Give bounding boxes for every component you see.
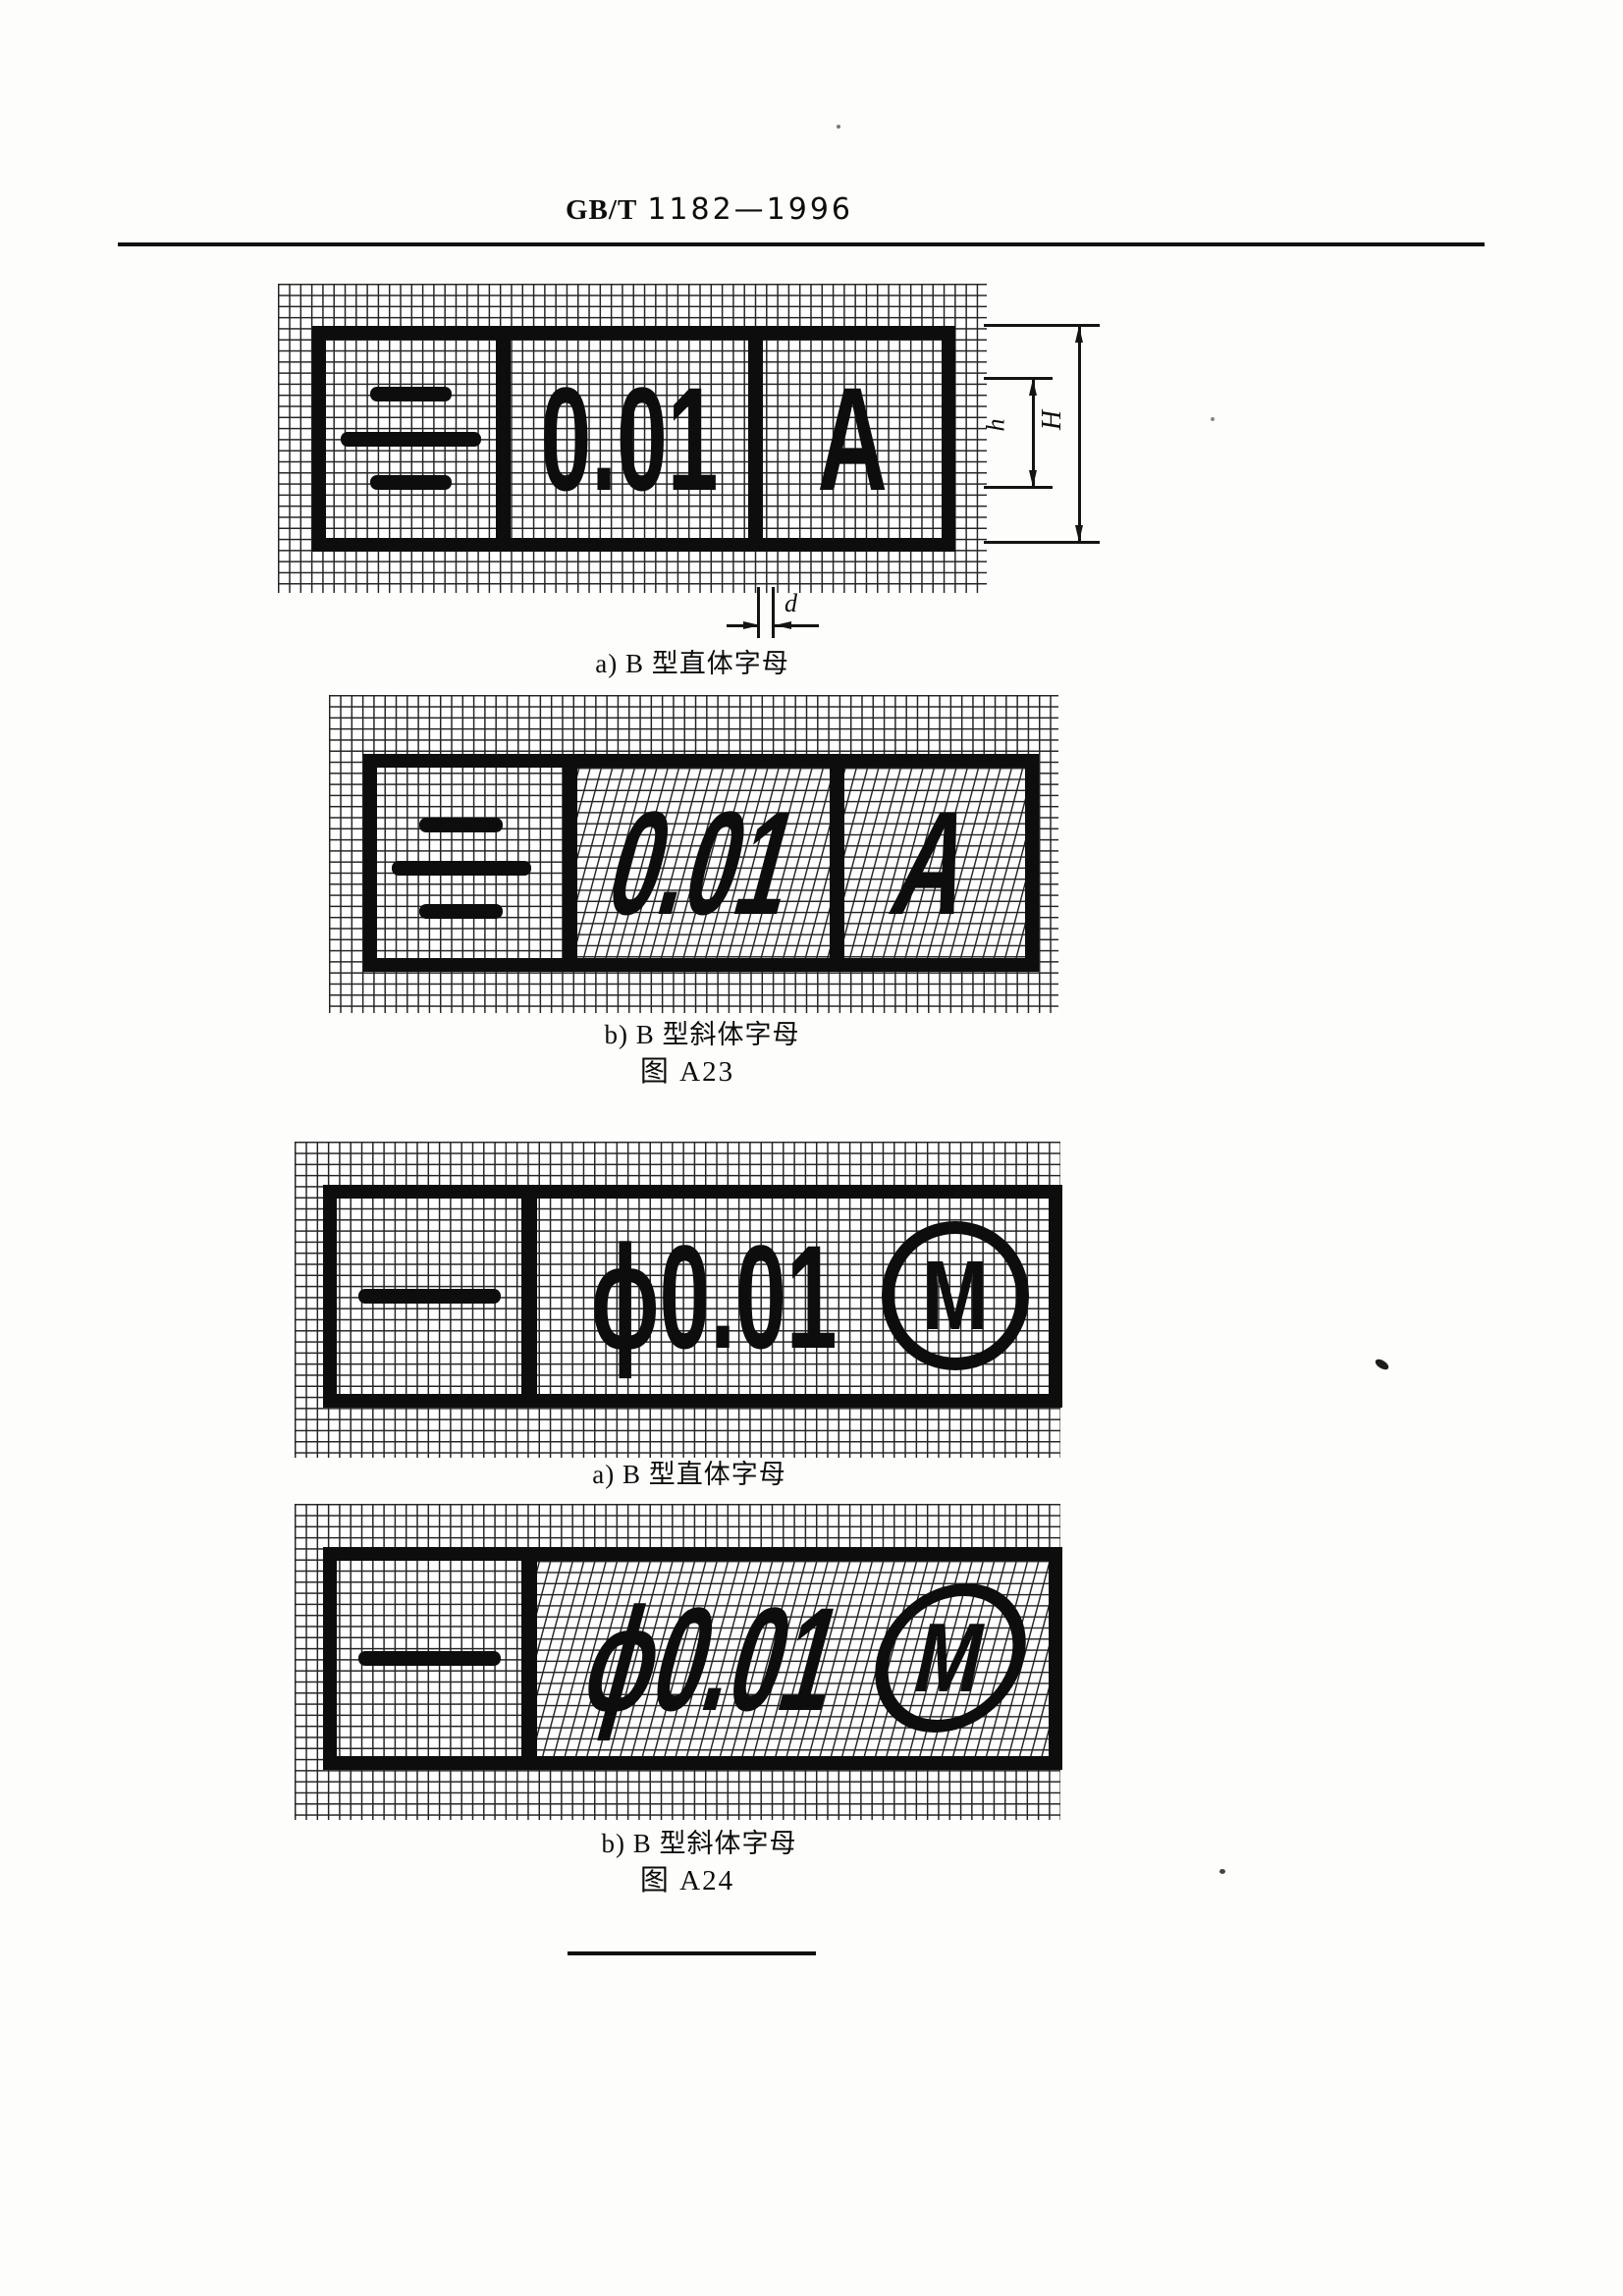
scan-speck	[1219, 1869, 1225, 1874]
arrowhead-right-icon	[743, 621, 760, 629]
frame-divider	[563, 768, 577, 958]
material-condition-modifier: M	[882, 1221, 1029, 1370]
scan-speck	[837, 125, 840, 129]
tolerance-value: ϕ0.01	[571, 1585, 857, 1733]
grid-paper-a24-upright: ϕ0.01 M	[295, 1142, 1060, 1458]
modifier-letter: M	[907, 1609, 994, 1707]
caption-a23-upright: a) B 型直体字母	[447, 642, 938, 680]
arrowhead-down-icon	[1029, 470, 1037, 487]
header-rule	[118, 242, 1485, 246]
symmetry-symbol-bar	[341, 432, 481, 447]
h-dimension-label: h	[982, 419, 1011, 432]
datum-letter: A	[817, 365, 887, 512]
arrowhead-up-icon	[1029, 379, 1037, 396]
caption-a24-italic: b) B 型斜体字母	[454, 1822, 945, 1860]
frame-divider	[748, 340, 763, 538]
tolerance-value-cell: ϕ0.01	[537, 1561, 891, 1756]
symmetry-symbol-bar	[419, 904, 503, 919]
d-extension-line	[757, 587, 760, 638]
standard-code-number: 1182—1996	[647, 192, 853, 227]
symmetry-symbol-bar	[419, 818, 503, 832]
grid-paper-a23-upright: 0.01 A	[278, 284, 987, 593]
caption-a24-upright: a) B 型直体字母	[444, 1453, 935, 1491]
page-title: GB/T 1182—1996	[566, 192, 853, 227]
tolerance-value: ϕ0.01	[591, 1223, 838, 1370]
symmetry-symbol-bar	[370, 387, 452, 401]
frame-divider	[521, 1199, 537, 1394]
extension-line-letter-top	[984, 377, 1053, 380]
arrowhead-down-icon	[1075, 525, 1083, 542]
arrowhead-up-icon	[1075, 326, 1083, 343]
frame-divider	[496, 340, 511, 538]
tolerance-value-cell: 0.01	[511, 340, 748, 538]
standard-code-prefix: GB/T	[566, 194, 637, 227]
datum-cell: A	[763, 340, 942, 538]
end-of-section-rule	[568, 1951, 816, 1955]
grid-paper-a24-italic: ϕ0.01 M	[295, 1504, 1060, 1820]
scan-speck	[1211, 417, 1215, 421]
grid-paper-a23-italic: 0.01 A	[329, 695, 1058, 1013]
datum-letter: A	[880, 789, 990, 936]
modifier-letter: M	[923, 1247, 989, 1345]
arrowhead-left-icon	[775, 621, 791, 629]
tolerance-value: 0.01	[541, 365, 719, 512]
d-extension-line	[772, 587, 775, 638]
tolerance-value-cell: ϕ0.01	[537, 1199, 891, 1394]
figure-label-a23: 图 A23	[442, 1048, 933, 1090]
straightness-symbol	[358, 1289, 501, 1304]
d-dimension-label: d	[784, 589, 797, 618]
symmetry-symbol-bar	[370, 475, 452, 490]
document-page: GB/T 1182—1996 0.01 A h H d a) B	[0, 0, 1623, 2296]
H-dimension-label: H	[1037, 410, 1068, 430]
H-dimension-line	[1078, 326, 1081, 542]
datum-cell: A	[844, 768, 1025, 958]
straightness-symbol	[358, 1651, 501, 1666]
scan-speck	[1374, 1358, 1390, 1372]
tolerance-value-cell: 0.01	[577, 768, 830, 958]
caption-a23-italic: b) B 型斜体字母	[457, 1013, 947, 1051]
frame-divider	[830, 768, 844, 958]
figure-label-a24: 图 A24	[442, 1857, 933, 1898]
symmetry-symbol-bar	[392, 861, 531, 876]
tolerance-value: 0.01	[595, 789, 812, 936]
frame-divider	[521, 1561, 537, 1756]
extension-line-letter-bottom	[984, 486, 1053, 489]
